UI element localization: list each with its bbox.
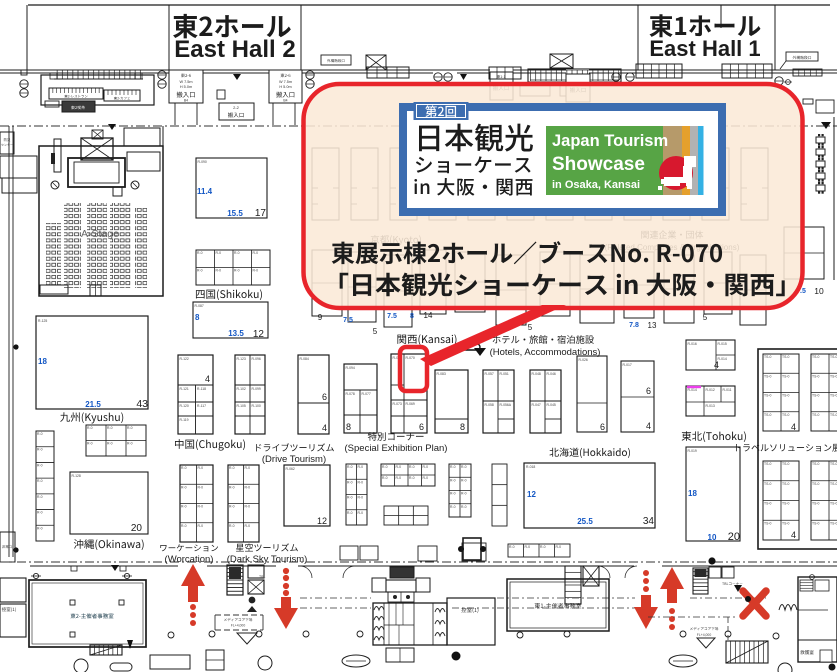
svg-text:4: 4 [322,423,327,433]
svg-text:R-0: R-0 [37,511,43,515]
svg-text:18: 18 [38,357,47,366]
svg-text:R-119: R-119 [180,418,189,422]
svg-text:FL+4,000: FL+4,000 [231,624,246,628]
svg-text:TS-0: TS-0 [782,462,789,466]
svg-text:R-125: R-125 [38,319,47,323]
svg-text:Japan Tourism: Japan Tourism [552,132,668,150]
svg-text:R-0: R-0 [509,545,515,549]
svg-text:(Dark Sky Tourism): (Dark Sky Tourism) [227,554,308,565]
svg-text:34: 34 [643,516,655,527]
svg-text:R-0: R-0 [87,442,93,446]
svg-text:TS-0: TS-0 [782,355,789,359]
svg-text:R-012: R-012 [706,388,715,392]
svg-text:R-121: R-121 [180,387,189,391]
svg-text:R-0: R-0 [245,524,251,528]
svg-text:R-0: R-0 [347,511,353,515]
svg-text:R-047: R-047 [532,403,541,407]
svg-text:R-0: R-0 [347,480,353,484]
svg-text:TS-0: TS-0 [764,502,771,506]
svg-text:R-070: R-070 [406,356,415,360]
svg-text:R-0: R-0 [396,465,402,469]
svg-text:R-0: R-0 [234,251,240,255]
svg-text:R-015: R-015 [718,342,727,346]
svg-text:TS-0: TS-0 [812,413,819,417]
svg-text:R-0: R-0 [461,478,467,482]
svg-text:9: 9 [318,313,323,322]
svg-text:R-0: R-0 [107,442,113,446]
svg-text:4: 4 [714,360,719,370]
svg-text:R-0: R-0 [198,485,204,489]
svg-text:R-0: R-0 [181,505,187,509]
svg-text:R-083: R-083 [437,372,446,376]
svg-text:8: 8 [346,422,351,432]
svg-text:R-069: R-069 [406,402,415,406]
svg-text:R-0: R-0 [540,545,546,549]
svg-text:R-0: R-0 [450,478,456,482]
svg-text:4: 4 [791,530,796,540]
svg-text:(Drive Tourism): (Drive Tourism) [262,454,326,465]
svg-text:R-087: R-087 [195,304,204,308]
svg-text:14: 14 [424,311,433,320]
svg-text:R-0: R-0 [450,505,456,509]
svg-text:R-048: R-048 [532,372,541,376]
svg-text:TS-0: TS-0 [812,502,819,506]
svg-text:R-0: R-0 [450,465,456,469]
svg-text:R-0: R-0 [197,251,203,255]
svg-text:R-0: R-0 [127,426,133,430]
svg-text:6: 6 [646,386,651,396]
svg-text:21.5: 21.5 [85,400,101,409]
svg-text:5: 5 [703,313,708,322]
svg-text:5: 5 [373,327,378,336]
svg-text:(Worcation): (Worcation) [165,554,214,565]
svg-text:R-084: R-084 [300,357,309,361]
svg-text:R-0: R-0 [245,505,251,509]
svg-text:18: 18 [688,489,697,498]
svg-text:2-2: 2-2 [233,105,240,110]
svg-text:W 7.5m: W 7.5m [179,80,192,84]
svg-text:East Hall 2: East Hall 2 [174,36,295,63]
svg-text:R-0: R-0 [461,492,467,496]
svg-text:R-0: R-0 [358,465,364,469]
svg-text:R-102: R-102 [237,387,246,391]
svg-text:R-016: R-016 [688,342,697,346]
svg-text:TS-0: TS-0 [830,374,837,378]
svg-text:TS-0: TS-0 [782,394,789,398]
svg-text:R-128: R-128 [72,474,81,478]
svg-text:R-026: R-026 [579,358,588,362]
svg-text:4: 4 [646,421,651,431]
svg-text:7.5: 7.5 [343,317,353,324]
svg-text:13: 13 [648,321,657,330]
svg-text:R-0: R-0 [37,495,43,499]
svg-text:R-0: R-0 [216,269,222,273]
svg-text:(Special Exhibition Plan): (Special Exhibition Plan) [345,443,448,454]
svg-text:R-0: R-0 [229,485,235,489]
svg-text:R-078: R-078 [346,392,355,396]
svg-text:11.4: 11.4 [197,187,213,196]
svg-text:6: 6 [600,422,605,432]
svg-text:R-019: R-019 [688,449,697,453]
svg-text:R-058: R-058 [485,403,494,407]
svg-text:H 5.0m: H 5.0m [279,85,291,89]
svg-text:6: 6 [322,392,327,402]
svg-text:R-046: R-046 [547,372,556,376]
svg-text:8: 8 [410,313,414,320]
svg-text:TS-0: TS-0 [764,413,771,417]
svg-text:4: 4 [791,422,796,432]
svg-text:R-0: R-0 [37,526,43,530]
svg-text:in Osaka, Kansai: in Osaka, Kansai [552,179,640,191]
svg-text:7.5: 7.5 [387,313,397,320]
svg-text:R-0: R-0 [525,545,531,549]
svg-text:R-0: R-0 [396,476,402,480]
svg-text:R-0: R-0 [87,426,93,430]
svg-text:R-0: R-0 [198,466,204,470]
svg-text:R-117: R-117 [197,404,206,408]
svg-text:A-Stage: A-Stage [81,228,119,240]
svg-text:W 7.5m: W 7.5m [279,80,292,84]
svg-text:TS-0: TS-0 [812,521,819,525]
svg-text:15.5: 15.5 [227,209,243,218]
svg-text:R-0: R-0 [229,505,235,509]
svg-text:R-0: R-0 [198,524,204,528]
svg-text:R-0: R-0 [347,465,353,469]
svg-text:R-0: R-0 [253,269,259,273]
svg-text:R-0: R-0 [197,269,203,273]
svg-text:TS-0: TS-0 [782,413,789,417]
svg-text:R-056A: R-056A [500,403,512,407]
svg-text:B4: B4 [184,99,188,103]
svg-text:R-0: R-0 [409,476,415,480]
svg-text:4: 4 [205,374,210,384]
svg-text:10: 10 [708,533,717,542]
svg-text:TS-0: TS-0 [830,521,837,525]
svg-text:R-017: R-017 [623,363,632,367]
svg-text:R-099: R-099 [252,387,261,391]
svg-text:R-0: R-0 [229,466,235,470]
svg-text:R-0: R-0 [358,480,364,484]
svg-text:5: 5 [528,323,533,332]
svg-text:R-0: R-0 [107,426,113,430]
svg-text:R-0: R-0 [198,505,204,509]
svg-text:R-120: R-120 [180,404,189,408]
svg-text:R-073: R-073 [393,402,402,406]
svg-text:R-0: R-0 [358,511,364,515]
svg-text:R-0: R-0 [37,479,43,483]
svg-text:R-118: R-118 [197,387,206,391]
svg-text:R-0: R-0 [423,465,429,469]
svg-text:20: 20 [131,523,143,534]
svg-text:R-0: R-0 [556,545,562,549]
svg-text:TS-0: TS-0 [812,374,819,378]
svg-text:TS-0: TS-0 [764,374,771,378]
svg-text:TS-0: TS-0 [812,355,819,359]
svg-text:R-096: R-096 [252,357,261,361]
svg-text:TS-0: TS-0 [830,413,837,417]
svg-text:R-0: R-0 [127,442,133,446]
svg-text:TS-0: TS-0 [830,462,837,466]
svg-text:R-0: R-0 [450,492,456,496]
svg-text:7.8: 7.8 [629,322,639,329]
svg-text:Showcase: Showcase [552,154,645,175]
svg-text:R-0: R-0 [229,524,235,528]
svg-text:12: 12 [253,329,265,340]
svg-text:R-057: R-057 [485,372,494,376]
svg-text:12: 12 [527,490,536,499]
svg-text:R-0: R-0 [423,476,429,480]
svg-text:TS-0: TS-0 [782,374,789,378]
svg-text:TS-0: TS-0 [812,394,819,398]
svg-text:TS-0: TS-0 [764,521,771,525]
svg-text:H 5.0m: H 5.0m [180,85,192,89]
svg-text:R-045: R-045 [547,403,556,407]
svg-text:R-011: R-011 [723,388,732,392]
svg-text:B4: B4 [283,99,287,103]
svg-text:R-0: R-0 [37,463,43,467]
svg-text:TS-0: TS-0 [830,355,837,359]
svg-text:6: 6 [419,422,424,432]
svg-text:R-0: R-0 [37,448,43,452]
svg-text:R-122: R-122 [180,357,189,361]
svg-text:R-0: R-0 [347,496,353,500]
svg-text:R-0: R-0 [409,465,415,469]
svg-text:R-0: R-0 [253,251,259,255]
svg-text:TS-0: TS-0 [764,394,771,398]
svg-text:R-0: R-0 [234,269,240,273]
svg-text:TS-0: TS-0 [830,394,837,398]
svg-text:TS-0: TS-0 [812,482,819,486]
svg-text:TS-0: TS-0 [830,482,837,486]
svg-text:TS-0: TS-0 [782,482,789,486]
svg-text:East Hall 1: East Hall 1 [649,36,760,61]
svg-text:TS-0: TS-0 [764,462,771,466]
svg-text:R-051: R-051 [500,372,509,376]
svg-text:TS-0: TS-0 [764,355,771,359]
svg-text:R-0: R-0 [181,466,187,470]
svg-text:25.5: 25.5 [577,517,593,526]
svg-text:R-123: R-123 [237,357,246,361]
svg-text:20: 20 [728,531,740,543]
svg-text:TS-0: TS-0 [782,502,789,506]
svg-text:R-0: R-0 [245,485,251,489]
svg-text:R-094: R-094 [346,366,355,370]
svg-text:R-105: R-105 [237,404,246,408]
svg-text:R-062: R-062 [286,467,295,471]
svg-text:R-0: R-0 [216,251,222,255]
svg-text:TS-0: TS-0 [812,462,819,466]
svg-text:(Hotels, Accommodations): (Hotels, Accommodations) [490,347,601,358]
svg-text:R-0: R-0 [181,524,187,528]
svg-text:R-0: R-0 [358,496,364,500]
svg-text:R-077: R-077 [362,392,371,396]
svg-text:R-0: R-0 [245,466,251,470]
svg-text:R-0: R-0 [461,465,467,469]
svg-text:8: 8 [195,313,200,322]
svg-text:13.5: 13.5 [228,329,244,338]
svg-text:12: 12 [317,516,327,526]
svg-text:R-0: R-0 [461,505,467,509]
svg-text:R-100: R-100 [252,404,261,408]
svg-text:TS-0: TS-0 [830,502,837,506]
svg-text:R-090: R-090 [198,160,207,164]
svg-text:R-013: R-013 [706,404,715,408]
svg-text:R-0: R-0 [382,476,388,480]
svg-text:FL+4,000: FL+4,000 [697,633,712,637]
svg-text:R-018: R-018 [526,465,535,469]
svg-text:43: 43 [136,398,148,410]
svg-text:10: 10 [814,286,824,296]
svg-text:R-014: R-014 [688,388,697,392]
svg-text:R-0: R-0 [37,432,43,436]
svg-text:17: 17 [255,208,267,219]
svg-text:TS-0: TS-0 [782,521,789,525]
svg-text:R-0: R-0 [181,485,187,489]
svg-text:TS-0: TS-0 [764,482,771,486]
svg-text:R-0: R-0 [382,465,388,469]
svg-text:8: 8 [460,422,465,432]
